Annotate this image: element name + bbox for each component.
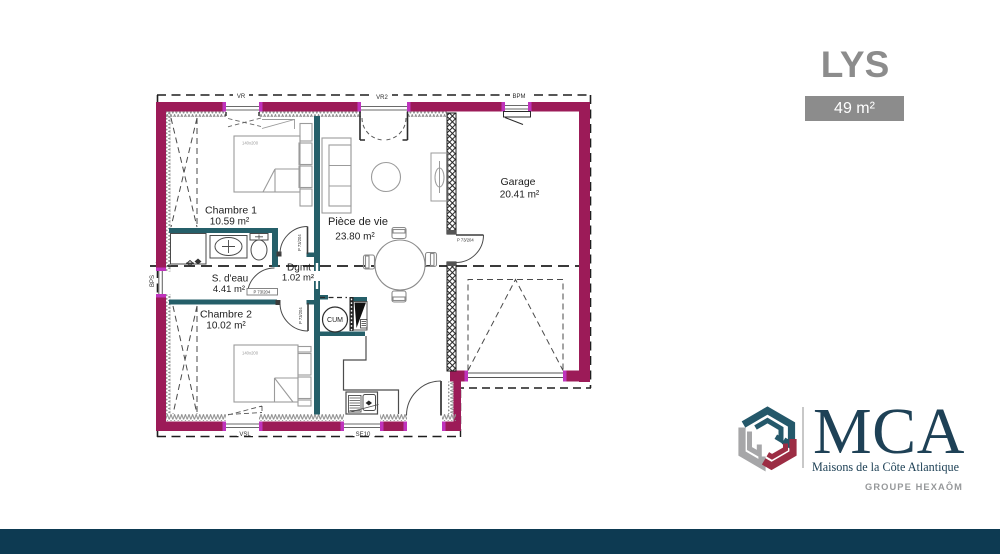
- svg-text:140x200: 140x200: [242, 141, 259, 146]
- svg-text:SE10: SE10: [356, 432, 371, 438]
- svg-text:Chambre 1: Chambre 1: [205, 205, 257, 217]
- svg-text:P 73/204: P 73/204: [457, 238, 474, 243]
- svg-text:23.80 m²: 23.80 m²: [335, 232, 375, 243]
- svg-text:1.02 m²: 1.02 m²: [282, 273, 314, 284]
- svg-text:Chambre 2: Chambre 2: [200, 309, 252, 321]
- svg-text:BPM: BPM: [512, 94, 525, 100]
- svg-text:Pièce de vie: Pièce de vie: [328, 216, 388, 228]
- svg-text:P 73/204: P 73/204: [298, 307, 303, 324]
- svg-text:S. d'eau: S. d'eau: [212, 274, 248, 285]
- svg-text:140x200: 140x200: [242, 351, 259, 356]
- svg-text:VSL: VSL: [239, 432, 251, 438]
- svg-text:4.41 m²: 4.41 m²: [213, 284, 245, 295]
- svg-text:10.02 m²: 10.02 m²: [206, 321, 246, 332]
- svg-text:20.41 m²: 20.41 m²: [500, 190, 540, 201]
- svg-text:CUM: CUM: [327, 317, 343, 324]
- svg-text:BPS: BPS: [150, 275, 156, 287]
- svg-text:10.59 m²: 10.59 m²: [210, 217, 250, 228]
- svg-text:Garage: Garage: [500, 176, 535, 188]
- svg-text:P 73/204: P 73/204: [297, 234, 302, 251]
- svg-text:VR: VR: [237, 94, 246, 100]
- svg-text:VR2: VR2: [376, 95, 388, 101]
- svg-text:P 73/204: P 73/204: [254, 290, 271, 295]
